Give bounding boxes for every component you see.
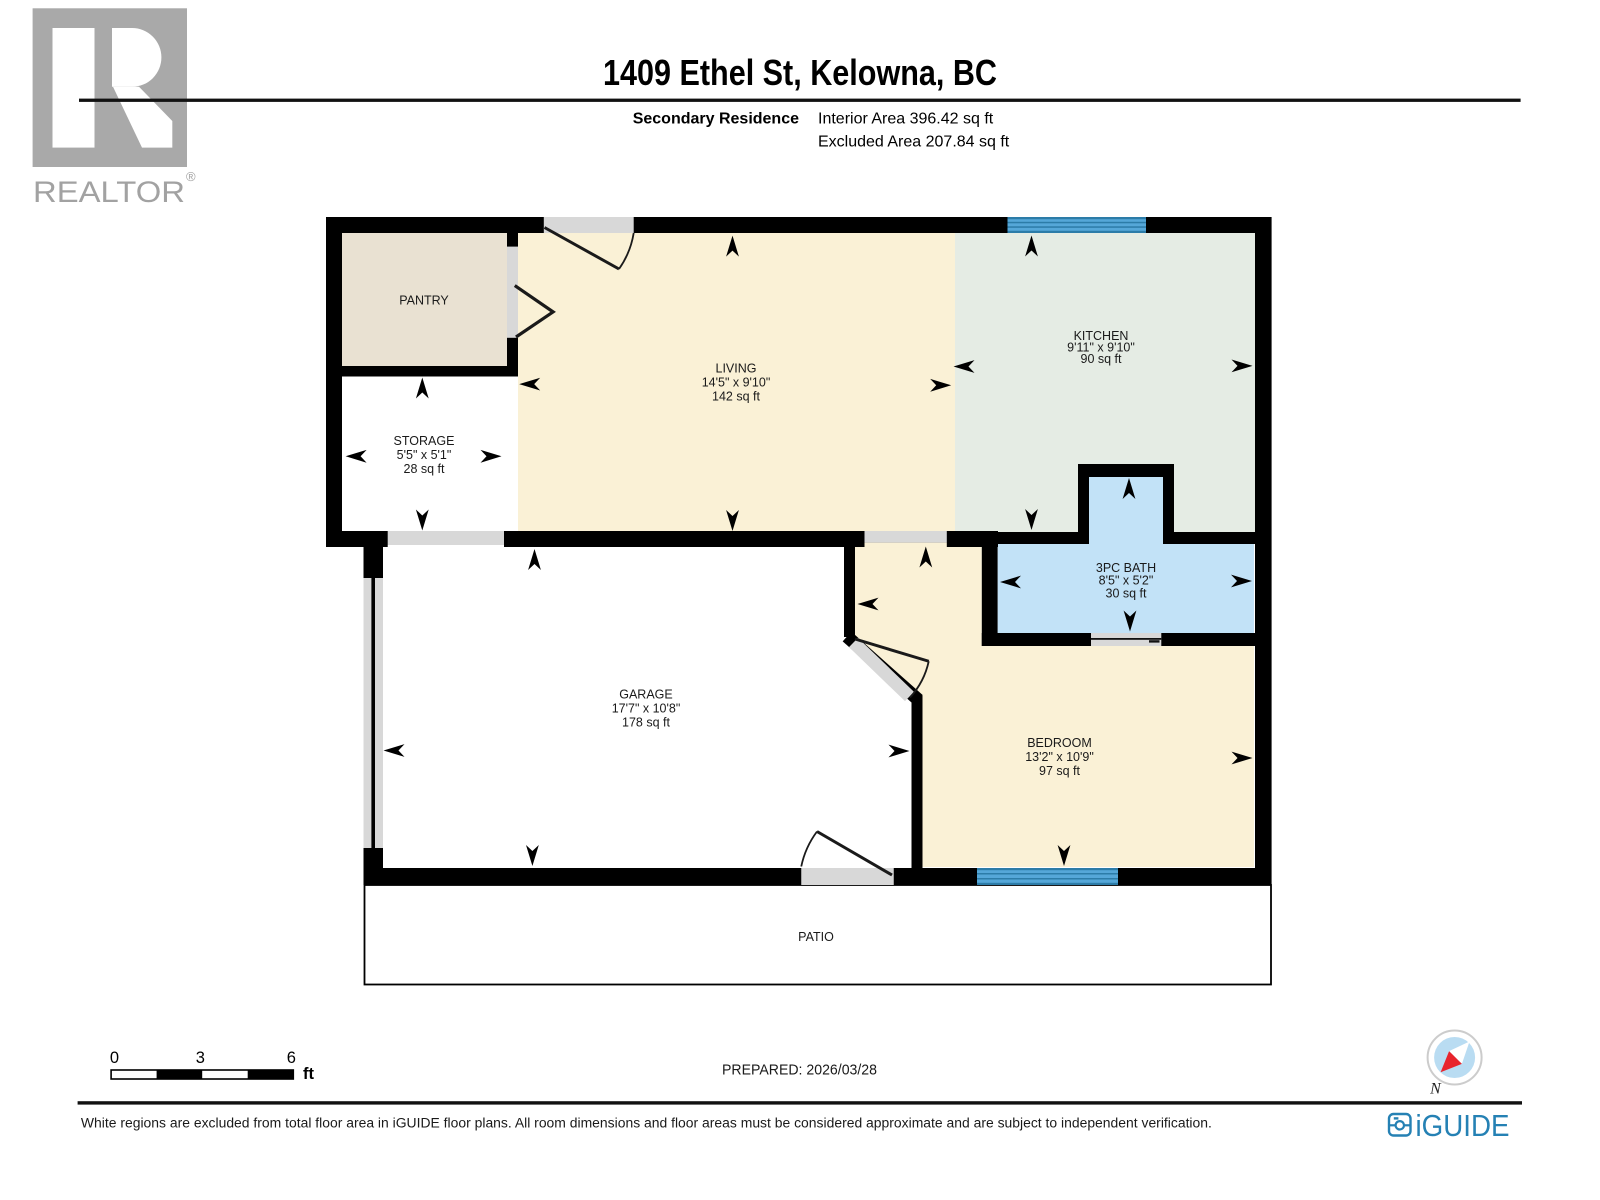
svg-text:0: 0 <box>110 1049 119 1067</box>
svg-text:PANTRY: PANTRY <box>399 294 449 308</box>
svg-text:®: ® <box>186 169 196 184</box>
svg-text:PATIO: PATIO <box>798 930 834 944</box>
svg-text:White regions are excluded fro: White regions are excluded from total fl… <box>81 1116 1212 1131</box>
svg-text:178 sq ft: 178 sq ft <box>622 716 670 730</box>
svg-text:GARAGE: GARAGE <box>619 688 673 702</box>
svg-text:3: 3 <box>196 1049 205 1067</box>
svg-text:REALTOR: REALTOR <box>33 176 185 209</box>
svg-text:6: 6 <box>287 1049 296 1067</box>
svg-text:1409 Ethel St, Kelowna, BC: 1409 Ethel St, Kelowna, BC <box>603 52 997 93</box>
svg-text:LIVING: LIVING <box>716 362 757 376</box>
svg-text:Interior Area 396.42 sq ft: Interior Area 396.42 sq ft <box>818 110 994 127</box>
svg-text:97 sq ft: 97 sq ft <box>1039 764 1081 778</box>
svg-text:8'5" x 5'2": 8'5" x 5'2" <box>1099 574 1154 588</box>
svg-text:13'2" x 10'9": 13'2" x 10'9" <box>1025 750 1094 764</box>
svg-text:ft: ft <box>303 1065 314 1083</box>
svg-text:PREPARED: 2026/03/28: PREPARED: 2026/03/28 <box>722 1062 877 1079</box>
svg-text:Excluded Area 207.84 sq ft: Excluded Area 207.84 sq ft <box>818 134 1010 151</box>
svg-text:90 sq ft: 90 sq ft <box>1081 352 1123 366</box>
svg-text:17'7" x 10'8": 17'7" x 10'8" <box>612 702 681 716</box>
svg-text:N: N <box>1429 1081 1442 1098</box>
svg-text:142 sq ft: 142 sq ft <box>712 390 760 404</box>
svg-text:BEDROOM: BEDROOM <box>1027 736 1092 750</box>
svg-text:STORAGE: STORAGE <box>394 434 455 448</box>
svg-text:Secondary Residence: Secondary Residence <box>633 110 799 127</box>
svg-text:5'5" x 5'1": 5'5" x 5'1" <box>397 448 452 462</box>
svg-text:14'5" x 9'10": 14'5" x 9'10" <box>702 376 771 390</box>
svg-text:28 sq ft: 28 sq ft <box>404 462 446 476</box>
svg-text:30 sq ft: 30 sq ft <box>1106 587 1148 601</box>
svg-text:iGUIDE: iGUIDE <box>1416 1109 1510 1143</box>
